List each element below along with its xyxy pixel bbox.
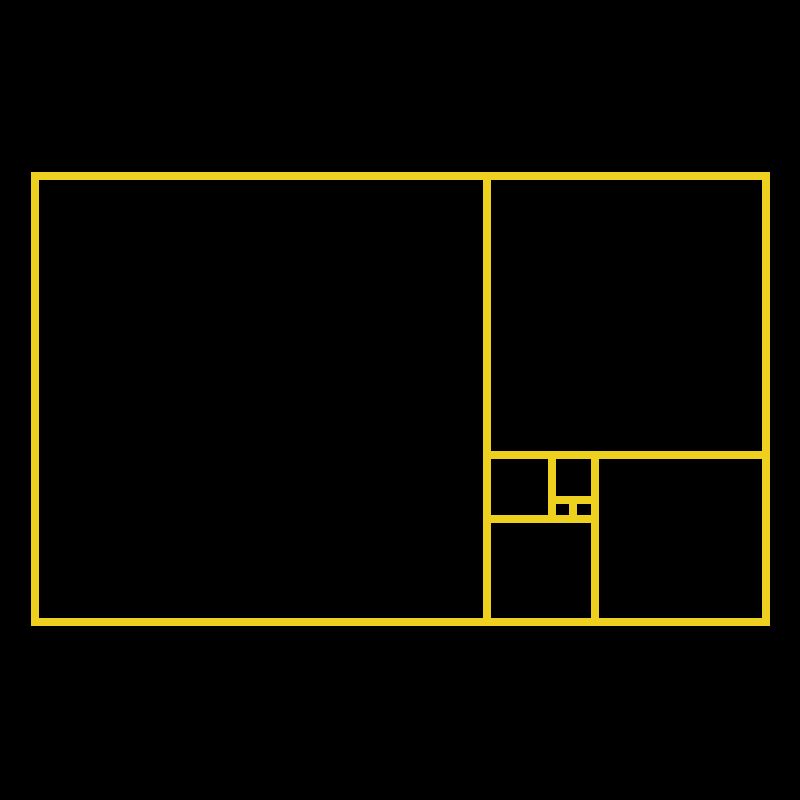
fibonacci-diagram bbox=[0, 0, 800, 800]
black-canvas bbox=[0, 0, 800, 800]
background bbox=[0, 0, 800, 800]
